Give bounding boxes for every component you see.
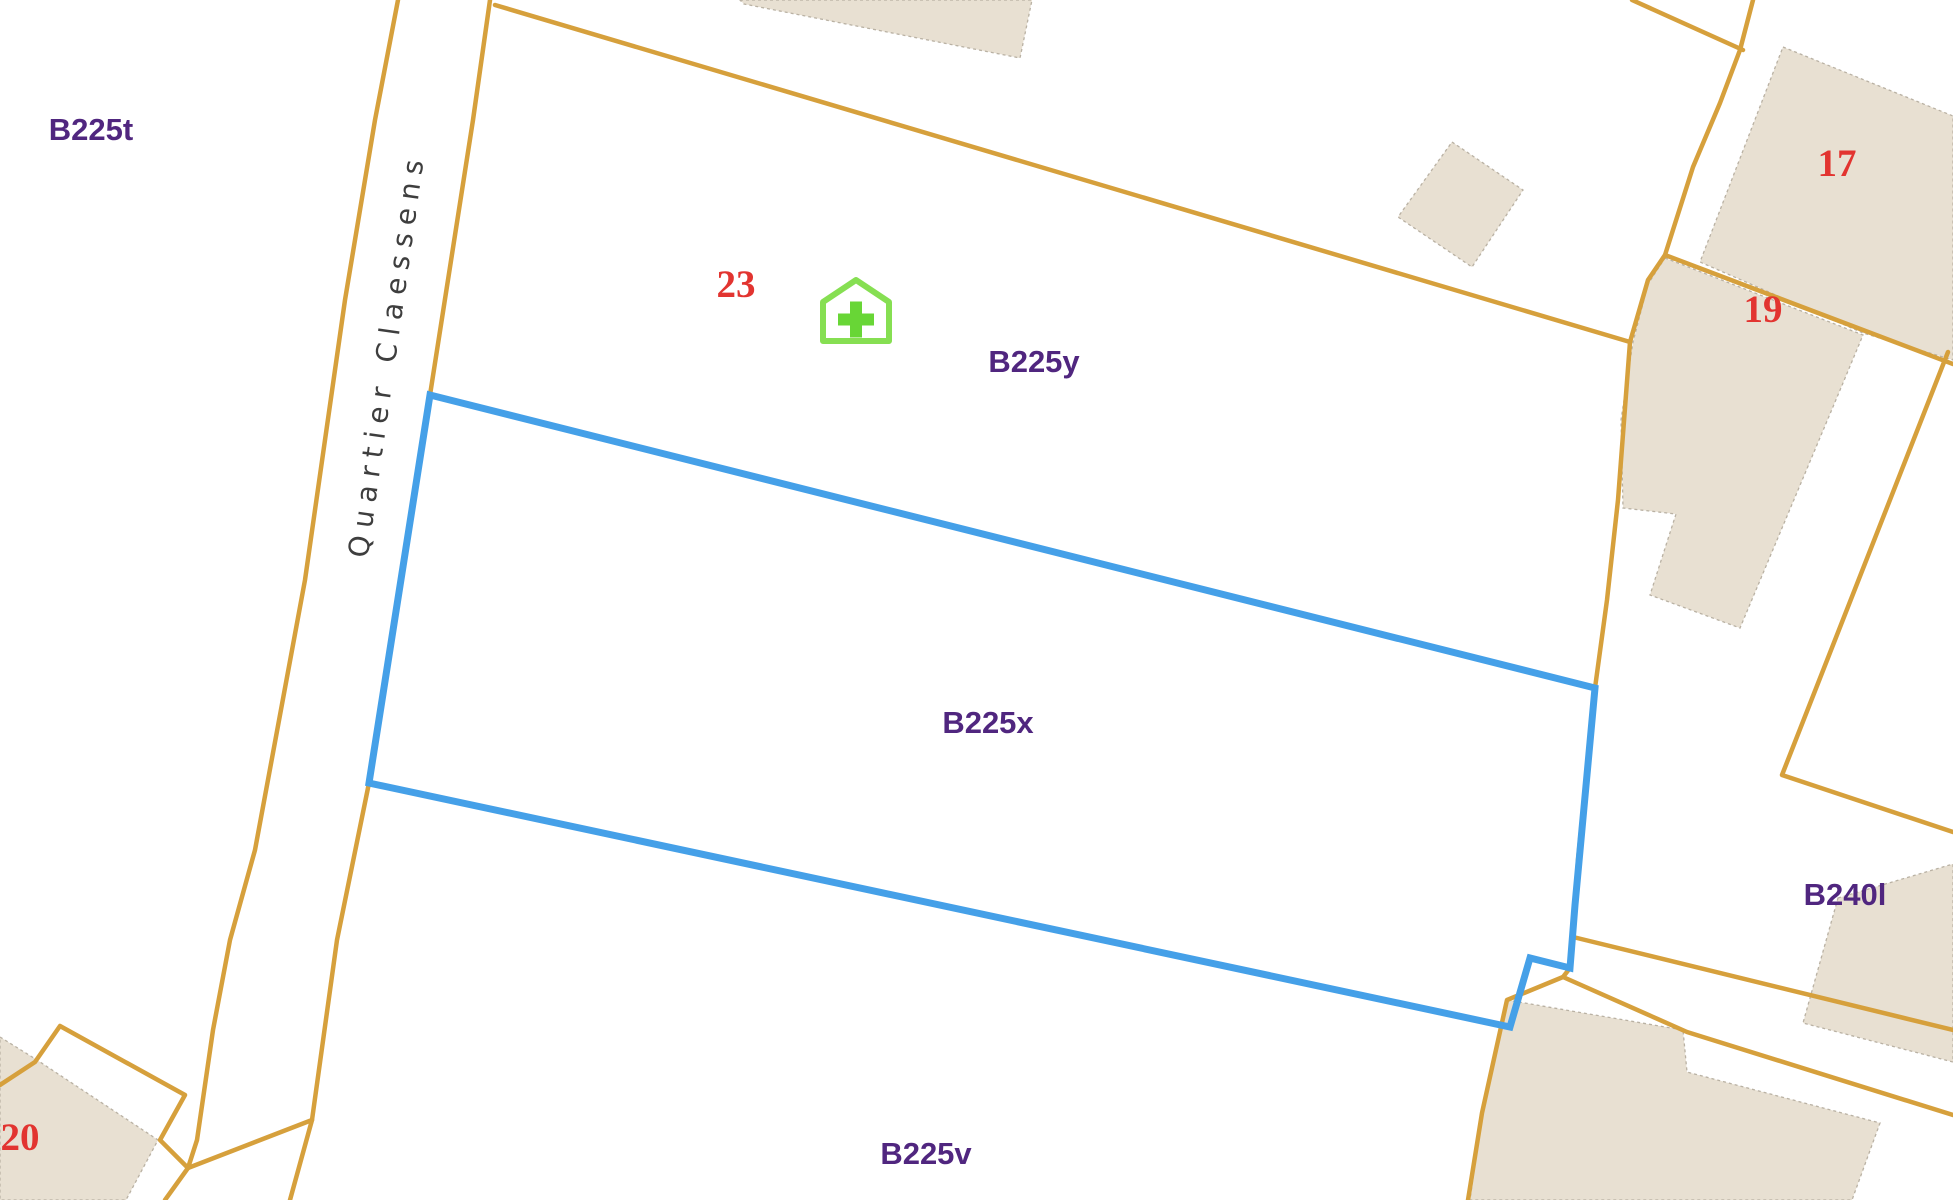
house-number-19: 19 [1744, 288, 1783, 331]
cadastral-map-svg[interactable]: Quartier ClaessensB225tB225yB225xB225vB2… [0, 0, 1953, 1200]
parcel-label-b225t: B225t [49, 112, 133, 147]
parcel-label-b225x: B225x [942, 705, 1034, 740]
parcel-label-b225v: B225v [880, 1136, 972, 1171]
house-number-17: 17 [1818, 142, 1857, 185]
cadastral-map-viewport[interactable]: Quartier ClaessensB225tB225yB225xB225vB2… [0, 0, 1953, 1200]
parcel-label-b225y: B225y [988, 344, 1080, 379]
house-number-20: 20 [1, 1116, 40, 1159]
parcel-label-b240l: B240l [1804, 877, 1887, 912]
house-number-23: 23 [717, 263, 756, 306]
